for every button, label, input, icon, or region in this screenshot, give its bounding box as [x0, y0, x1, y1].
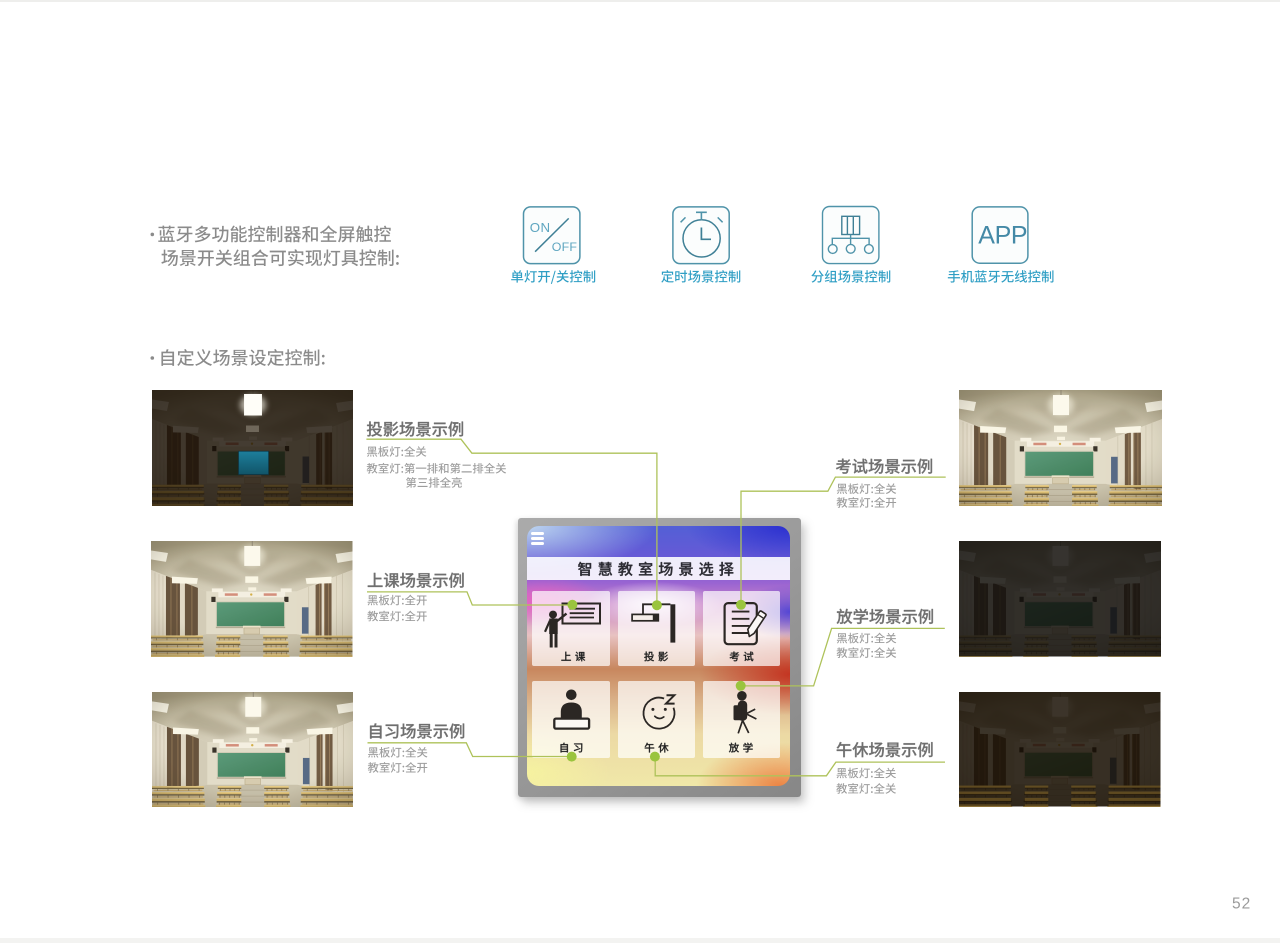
svg-text:ON: ON — [530, 220, 551, 235]
svg-text:52: 52 — [1232, 896, 1251, 913]
svg-text:APP: APP — [978, 221, 1027, 249]
svg-text:OFF: OFF — [552, 240, 578, 254]
